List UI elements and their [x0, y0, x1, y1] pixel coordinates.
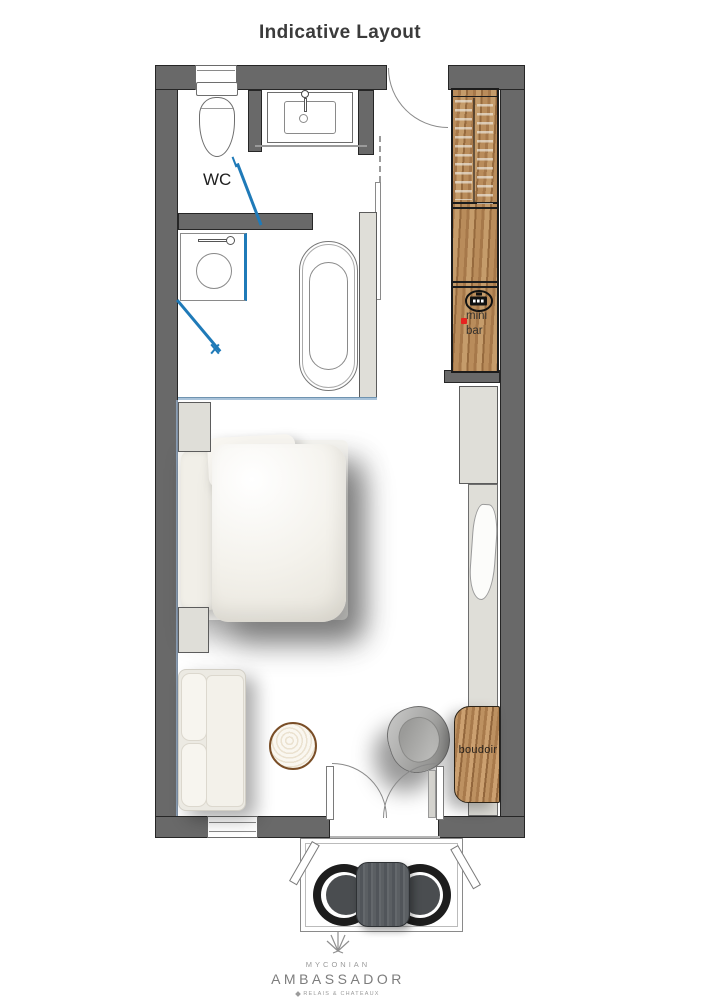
sink-basin — [284, 101, 336, 134]
bed-duvet — [212, 444, 346, 622]
hangers-icon — [455, 100, 472, 200]
minibar-label: bar — [466, 325, 483, 338]
minibar-label: mini — [466, 310, 487, 323]
hotel-logo: MYCONIAN AMBASSADOR RELAIS & CHATEAUX — [238, 930, 438, 997]
shower-knob-icon — [226, 236, 235, 245]
french-door-swing-left — [332, 763, 387, 818]
window-frame-line — [209, 822, 256, 823]
sink-drain — [299, 114, 308, 123]
french-door-swing-right — [383, 763, 438, 818]
logo-affiliation-text: RELAIS & CHATEAUX — [303, 991, 379, 997]
sunburst-icon — [323, 930, 353, 954]
sofa-back-cushion — [181, 743, 207, 807]
wall-top-middle — [235, 65, 387, 90]
partition-wc-shower — [178, 213, 313, 230]
faucet-stem — [304, 98, 307, 112]
wardrobe-divider-line — [451, 286, 499, 288]
hangers-icon — [477, 104, 493, 204]
toilet-cistern — [196, 82, 238, 96]
page-title: Indicative Layout — [155, 22, 525, 44]
french-door-leaf-right — [436, 766, 444, 820]
wardrobe-divider-line — [451, 281, 499, 283]
french-door-leaf-left — [326, 766, 334, 820]
diamond-icon — [296, 991, 302, 997]
wall-right — [500, 65, 525, 838]
window-frame-line — [209, 831, 256, 832]
bathtub-basin — [309, 262, 348, 370]
counter-edge-line — [255, 145, 367, 147]
ceiling-break-dashed-line — [379, 136, 381, 182]
shower-drain — [196, 253, 232, 289]
toilet-seat-line — [201, 108, 233, 109]
sofa-seat — [206, 675, 244, 807]
sofa-back-cushion — [181, 673, 207, 741]
nightstand-top — [178, 402, 211, 452]
toilet-bowl — [199, 97, 235, 157]
partition-wc-sink — [248, 90, 262, 152]
logo-affiliation: RELAIS & CHATEAUX — [238, 991, 438, 997]
wall-bottom-left — [155, 816, 209, 838]
hanger-rail — [473, 98, 475, 202]
shower-glass-door — [176, 299, 221, 352]
glass-partition-line — [178, 397, 377, 400]
wc-label: WC — [203, 170, 231, 190]
wc-door-tick — [232, 157, 238, 168]
logo-name-main: AMBASSADOR — [238, 971, 438, 987]
luggage-bench — [459, 386, 498, 484]
wall-left — [155, 65, 178, 838]
wall-top-right — [448, 65, 525, 90]
bath-partition-panel — [359, 212, 377, 400]
wardrobe-shelf-line — [451, 96, 499, 97]
wall-bottom-middle — [256, 816, 330, 838]
floorplan-page: Indicative Layout WC — [0, 0, 707, 1000]
logo-name-top: MYCONIAN — [238, 960, 438, 969]
wall-top-left — [155, 65, 197, 90]
boudoir-label: boudoir — [455, 744, 501, 756]
nightstand-bottom — [178, 607, 209, 653]
terrace-table — [356, 862, 410, 927]
faucet-icon — [301, 90, 309, 98]
side-table-round — [269, 722, 317, 770]
window-bottom — [207, 816, 258, 838]
wardrobe-divider-line — [451, 207, 499, 209]
window-frame-line — [197, 70, 235, 71]
wall-bottom-right — [438, 816, 525, 838]
entry-door-swing — [388, 68, 448, 128]
